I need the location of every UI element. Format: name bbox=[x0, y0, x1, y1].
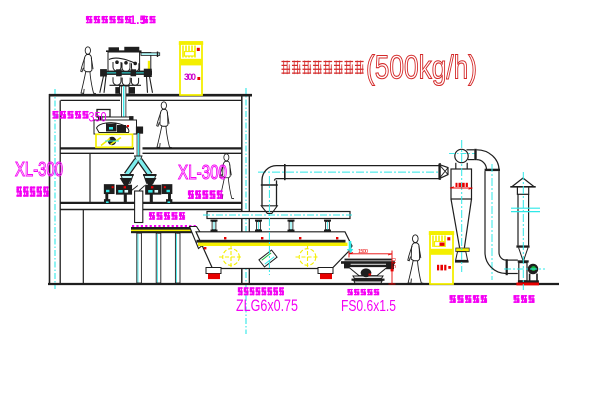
svg-text:1500: 1500 bbox=[358, 249, 368, 255]
svg-text:(500kg/h): (500kg/h) bbox=[366, 49, 477, 86]
svg-text:XL-300: XL-300 bbox=[15, 159, 63, 181]
svg-text:XL-300: XL-300 bbox=[178, 162, 227, 184]
svg-text:540: 540 bbox=[392, 258, 398, 268]
svg-text:1.5: 1.5 bbox=[130, 13, 147, 27]
svg-text:350: 350 bbox=[89, 109, 107, 125]
svg-text:FS0.6x1.5: FS0.6x1.5 bbox=[341, 298, 396, 315]
svg-text:300: 300 bbox=[184, 72, 196, 82]
svg-text:ZLG6x0.75: ZLG6x0.75 bbox=[236, 296, 298, 315]
